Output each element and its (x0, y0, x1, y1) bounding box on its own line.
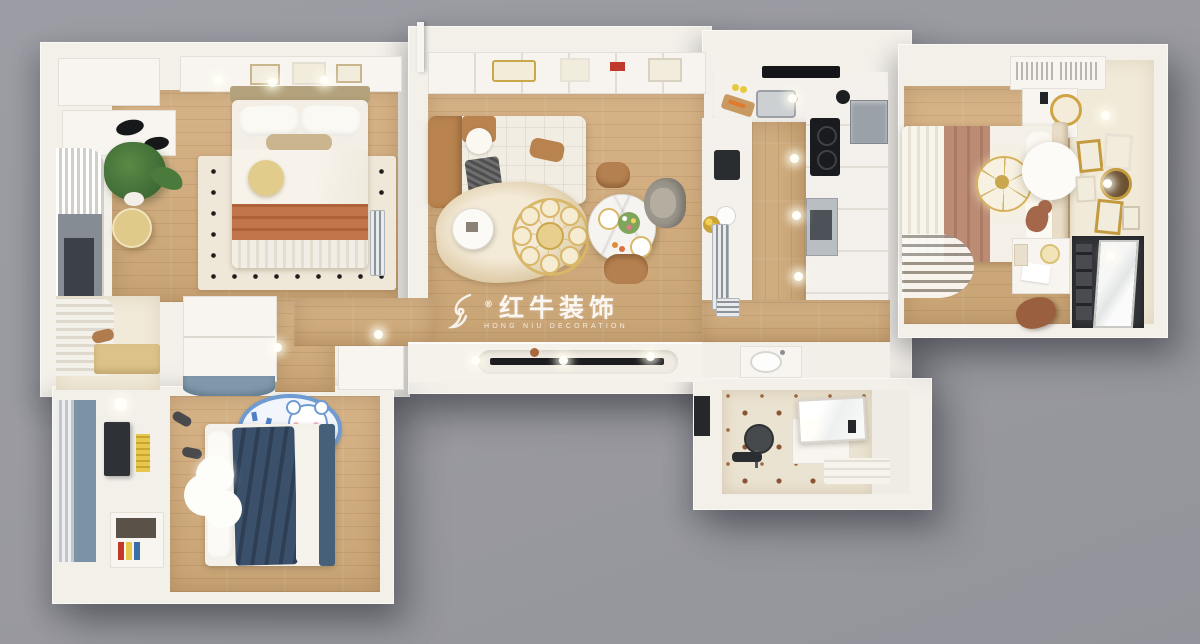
cabinet-color-books (126, 542, 132, 560)
gallery-frame (1076, 139, 1103, 173)
downlight (214, 76, 223, 85)
cabinet-deco-red-box (610, 62, 625, 71)
fruit (619, 246, 625, 252)
shelf-picture-frame (336, 64, 362, 83)
coffee-machine (714, 150, 740, 180)
downlight (792, 211, 801, 220)
dining-chair-gray-seat (650, 188, 676, 218)
hallway-floor (294, 298, 434, 346)
vanity-black-item (848, 420, 856, 433)
kids-monitor (104, 422, 130, 476)
bear-rug-ear (314, 400, 329, 415)
master-radiator (370, 210, 385, 276)
kids-bed-pillow (208, 496, 234, 558)
downlight (273, 343, 282, 352)
nook-bench (94, 344, 160, 374)
wardrobe-shelves (1076, 244, 1092, 320)
gallery-frame (1094, 199, 1123, 236)
sofa-round-pillow (466, 128, 492, 154)
bear-rug-ear (286, 400, 301, 415)
plant-pot (124, 192, 144, 206)
range-hood (762, 66, 840, 78)
flower-bouquet (618, 212, 640, 234)
cabinet-color-books (134, 542, 140, 560)
white-pendant-disc (1022, 142, 1080, 200)
kids-bed-duvet (296, 430, 320, 562)
oven-window (810, 210, 832, 240)
washbasin-faucet (780, 350, 785, 355)
downlight (1106, 251, 1115, 260)
chandelier-bulb (560, 206, 580, 226)
dining-chair-caramel (596, 162, 630, 188)
downlight (471, 356, 480, 365)
downlight (1103, 179, 1112, 188)
ac-vent (1060, 62, 1098, 80)
lamp-center (995, 175, 1009, 189)
downlight (268, 78, 277, 87)
desk-lamp (1040, 244, 1060, 264)
teddy-bear-head (1038, 200, 1052, 214)
dining-chair-caramel (604, 254, 648, 284)
tv-screen (490, 358, 664, 365)
chandelier-bulb (540, 198, 560, 218)
kids-desk-books (136, 434, 150, 472)
hall-wardrobe (183, 296, 277, 382)
dining-plate (598, 208, 620, 230)
master-bed-pillow (300, 105, 361, 137)
striped-rug (902, 234, 974, 298)
chandelier-center (536, 222, 564, 250)
downlight (1101, 111, 1110, 120)
cabinet-deco-frame (560, 58, 590, 82)
gallery-frame (1075, 175, 1096, 202)
cabinet-color-books (118, 542, 124, 560)
bathroom-mirror (797, 396, 867, 443)
master-closet-alcove (58, 58, 160, 106)
mirror-light-glow (808, 424, 817, 433)
console-deco (530, 348, 539, 357)
side-table-tray (466, 222, 478, 232)
chandelier-bulb (560, 246, 580, 266)
wall-niche (694, 396, 710, 436)
chandelier-bulb (512, 226, 532, 246)
downlight (646, 352, 655, 361)
bath-step-bench (824, 458, 890, 484)
desk-books (1014, 244, 1028, 266)
kettle (836, 90, 850, 104)
downlight (374, 330, 383, 339)
ac-vent (1016, 62, 1054, 80)
cabinet-open-shelf (116, 518, 156, 538)
chandelier-bulb (520, 206, 540, 226)
cloud-rug (196, 456, 234, 494)
refrigerator (850, 100, 888, 144)
gallery-frame (1122, 206, 1140, 230)
orange-throw-blanket (232, 204, 368, 240)
washbasin-sink (750, 351, 782, 373)
yellow-stool (112, 208, 152, 248)
master-bed-lumbar-pillow (266, 134, 332, 151)
perfume-bottle (1040, 92, 1048, 104)
master-window-pane (64, 238, 94, 302)
structural-column (417, 22, 424, 72)
downlight (788, 94, 797, 103)
chandelier-bulb (568, 226, 588, 246)
blue-valance (183, 376, 275, 398)
downlight (790, 154, 799, 163)
master-bed-pleated-end (232, 240, 368, 268)
fruit (612, 242, 618, 248)
wardrobe-mirror-door (1093, 240, 1139, 328)
kitchen-floor (752, 122, 806, 318)
shower-faucet-set (732, 452, 762, 462)
hall-vent (716, 298, 740, 317)
sofa-caramel-arm (428, 116, 462, 208)
kids-bed-headboard (319, 424, 335, 566)
lemons (732, 84, 739, 91)
cabinet-deco-tray (492, 60, 536, 82)
cooktop-burner (817, 126, 837, 146)
gallery-frame (1103, 133, 1133, 171)
downlight (320, 76, 329, 85)
shower-mirror-disc (744, 424, 774, 454)
downlight (559, 356, 568, 365)
cooktop-burner (817, 150, 837, 170)
downlight (794, 272, 803, 281)
floor-plan-render: ®红牛装饰 HONG NIU DECORATION (0, 0, 1200, 644)
navy-blanket (232, 426, 298, 566)
cabinet-deco-frame (648, 58, 682, 82)
chandelier-bulb (520, 246, 540, 266)
master-bed-pillow (238, 105, 299, 137)
wardrobe-door-seam (183, 336, 275, 338)
kids-curtain (56, 400, 74, 562)
desk-lamp-glow (114, 398, 127, 411)
chandelier-bulb (540, 254, 560, 274)
round-yellow-cushion (248, 160, 284, 196)
